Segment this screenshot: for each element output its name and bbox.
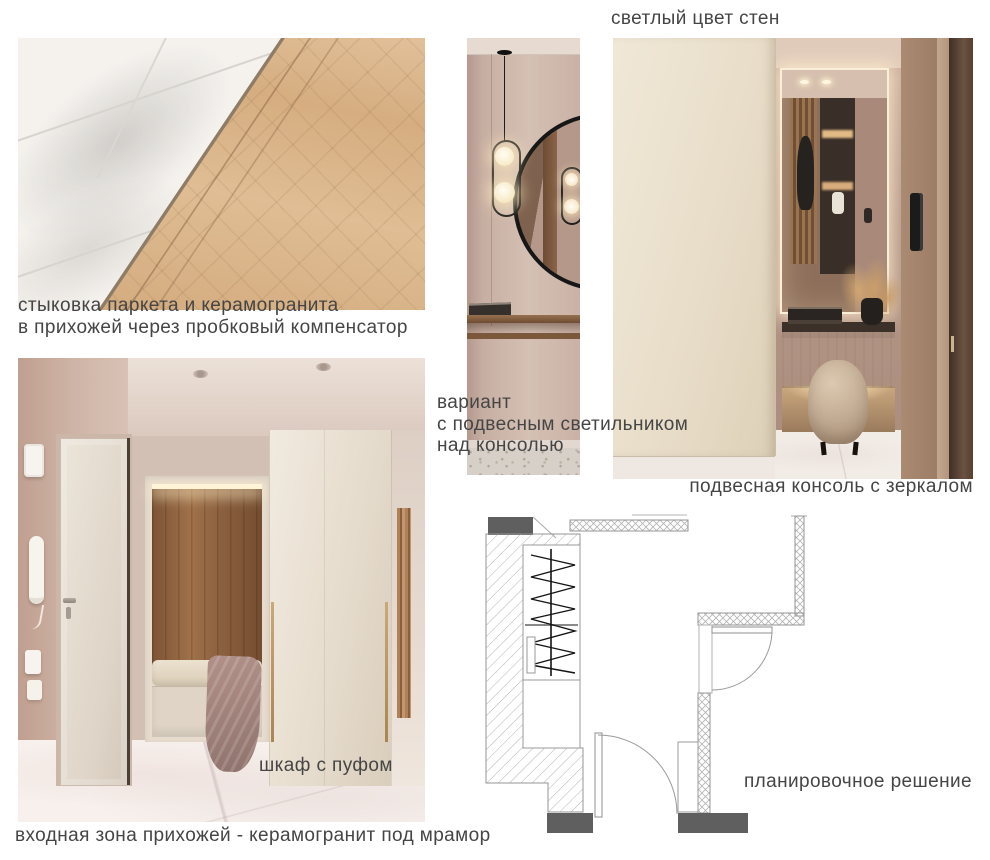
mirror-reflection-sconce — [864, 208, 872, 223]
caption-wall-color: светлый цвет стен — [611, 8, 780, 30]
door-gap-line — [127, 438, 130, 785]
mirror-reflection-vase — [832, 192, 844, 214]
console-shelf-lower — [467, 333, 580, 339]
caption-text: стыковка паркета и керамогранита — [18, 295, 408, 317]
caption-text: шкаф с пуфом — [259, 755, 393, 777]
mirror-reflection-ceiling — [782, 70, 887, 98]
mirror-reflection-coat — [797, 136, 814, 210]
entrance-door — [949, 38, 973, 479]
photo-parquet-tile-junction — [18, 38, 425, 310]
pendant-bulb — [494, 182, 515, 203]
pouf — [808, 360, 868, 444]
niche-led-strip — [152, 484, 262, 489]
console-shelf — [467, 315, 580, 323]
ceiling-glow — [775, 38, 901, 68]
plan-wall-lower-right — [698, 693, 710, 813]
photo-entrance-zone — [18, 358, 425, 822]
plan-interior-door-swing — [712, 630, 772, 690]
plan-entry-door-leaf — [595, 733, 602, 817]
wardrobe-door-split — [324, 430, 325, 786]
mirror-reflection-bulb — [565, 173, 578, 186]
caption-hanging-console: подвесная консоль с зеркалом — [689, 476, 973, 498]
books-stack — [788, 307, 842, 324]
door-handle — [63, 598, 76, 603]
hallway-wood-slats — [397, 508, 411, 718]
coat-niche-walnut — [152, 484, 262, 666]
caption-pendant-option: вариант с подвесным светильником над кон… — [437, 392, 688, 457]
plan-cabinet — [678, 742, 698, 812]
caption-text: входная зона прихожей - керамогранит под… — [15, 825, 491, 847]
black-vase — [861, 298, 883, 325]
plan-entry-door-swing — [598, 735, 677, 814]
caption-floor-plan: планировочное решение — [744, 771, 972, 793]
caption-entrance-zone: входная зона прихожей - керамогранит под… — [15, 825, 491, 847]
caption-text: в прихожей через пробковый компенсатор — [18, 317, 408, 339]
intercom-handset — [29, 536, 44, 604]
wardrobe-doors — [269, 430, 392, 786]
mirror-reflection-wood — [543, 117, 557, 287]
round-mirror — [513, 113, 580, 291]
pendant-cord — [504, 56, 505, 142]
mirror-reflection-spotlight — [822, 80, 831, 84]
plan-wardrobe-lower — [523, 680, 580, 748]
door-lock — [66, 607, 71, 619]
wardrobe-handle — [271, 602, 274, 742]
caption-text: светлый цвет стен — [611, 8, 780, 30]
plan-duct — [527, 637, 535, 673]
mirror-reflection-shelf-light — [822, 130, 853, 138]
plan-wall-room — [698, 613, 804, 625]
plan-wall-right — [795, 516, 804, 616]
ceiling — [467, 38, 580, 55]
caption-wardrobe-pouf: шкаф с пуфом — [259, 755, 393, 777]
wall-socket — [27, 680, 42, 700]
plan-column-bottom-left — [547, 813, 593, 833]
light-switch — [24, 444, 44, 477]
wardrobe-handle — [385, 602, 388, 742]
ceiling-spotlight — [193, 370, 208, 378]
mirror-reflection-shelf-light — [822, 182, 853, 190]
caption-text: над консолью — [437, 435, 688, 457]
caption-parquet-joint: стыковка паркета и керамогранита в прихо… — [18, 295, 408, 338]
intercom-panel — [910, 193, 923, 251]
plan-wall-top — [570, 520, 688, 531]
pendant-canopy — [497, 50, 512, 55]
plan-column-top — [488, 517, 533, 535]
plan-interior-door-leaf — [712, 627, 772, 633]
caption-text: с подвесным светильником — [437, 414, 688, 436]
door-frame — [937, 38, 949, 479]
design-moodboard: светлый цвет стен стыковка паркета и кер… — [0, 0, 990, 860]
caption-text: подвесная консоль с зеркалом — [689, 476, 973, 498]
caption-text: планировочное решение — [744, 771, 972, 793]
light-switch — [25, 650, 41, 674]
plan-column-bottom-right — [678, 813, 748, 833]
right-wall — [901, 38, 937, 479]
mirror-reflection-bulb — [564, 199, 579, 214]
ceiling-spotlight — [316, 363, 331, 371]
door-handle — [951, 336, 954, 352]
caption-text: вариант — [437, 392, 688, 414]
plan-door-jamb — [699, 625, 712, 693]
mirror-reflection-spotlight — [800, 80, 809, 84]
pendant-bulb — [495, 147, 514, 166]
